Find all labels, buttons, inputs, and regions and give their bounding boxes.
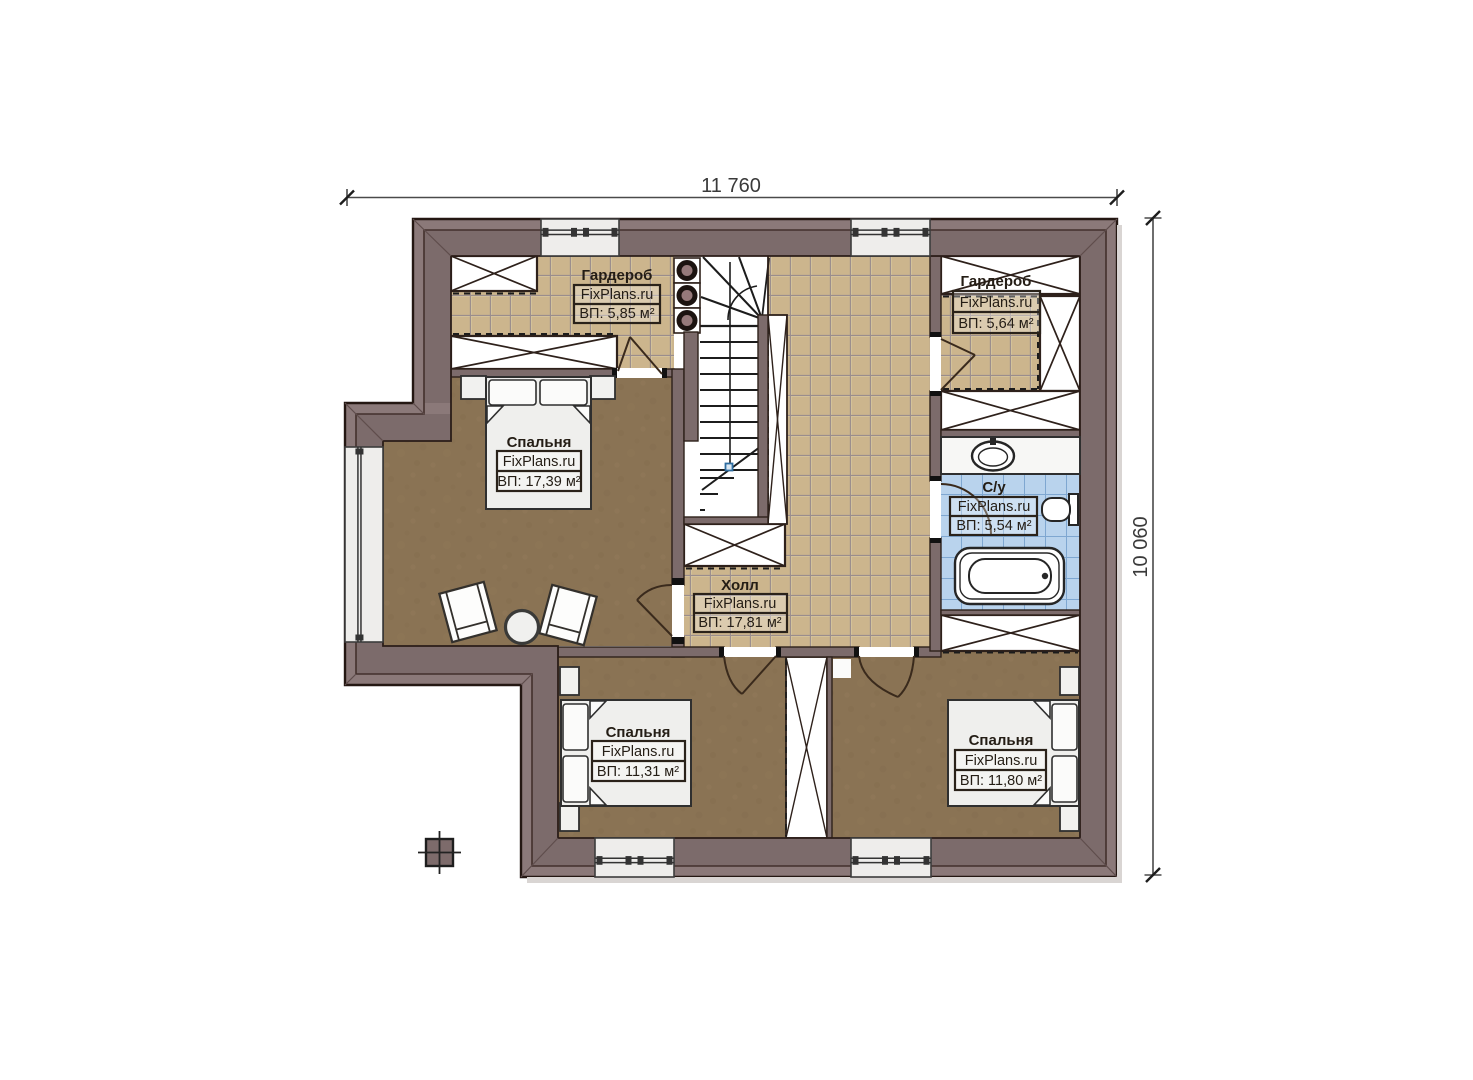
svg-text:ВП: 17,39 м²: ВП: 17,39 м² xyxy=(497,474,580,490)
svg-text:11 760: 11 760 xyxy=(701,175,761,197)
svg-text:FixPlans.ru: FixPlans.ru xyxy=(602,744,675,760)
svg-text:ВП: 5,85 м²: ВП: 5,85 м² xyxy=(579,306,654,322)
svg-text:Холл: Холл xyxy=(721,577,759,594)
svg-text:FixPlans.ru: FixPlans.ru xyxy=(965,753,1038,769)
svg-text:ВП: 5,54 м²: ВП: 5,54 м² xyxy=(956,518,1031,534)
svg-text:FixPlans.ru: FixPlans.ru xyxy=(960,295,1033,311)
svg-text:FixPlans.ru: FixPlans.ru xyxy=(958,499,1031,515)
svg-text:10 060: 10 060 xyxy=(1130,516,1152,577)
svg-text:ВП: 5,64 м²: ВП: 5,64 м² xyxy=(958,316,1033,332)
svg-text:Спальня: Спальня xyxy=(507,434,572,451)
svg-text:Гардероб: Гардероб xyxy=(961,273,1032,290)
svg-text:FixPlans.ru: FixPlans.ru xyxy=(704,596,777,612)
svg-text:Гардероб: Гардероб xyxy=(582,267,653,284)
svg-text:ВП: 17,81 м²: ВП: 17,81 м² xyxy=(698,615,781,631)
svg-text:Спальня: Спальня xyxy=(969,732,1034,749)
svg-text:ВП: 11,31 м²: ВП: 11,31 м² xyxy=(597,764,679,780)
svg-text:ВП: 11,80 м²: ВП: 11,80 м² xyxy=(960,773,1042,789)
svg-text:FixPlans.ru: FixPlans.ru xyxy=(581,287,654,303)
svg-text:Спальня: Спальня xyxy=(606,724,671,741)
svg-text:С/у: С/у xyxy=(982,479,1006,496)
svg-text:FixPlans.ru: FixPlans.ru xyxy=(503,454,576,470)
